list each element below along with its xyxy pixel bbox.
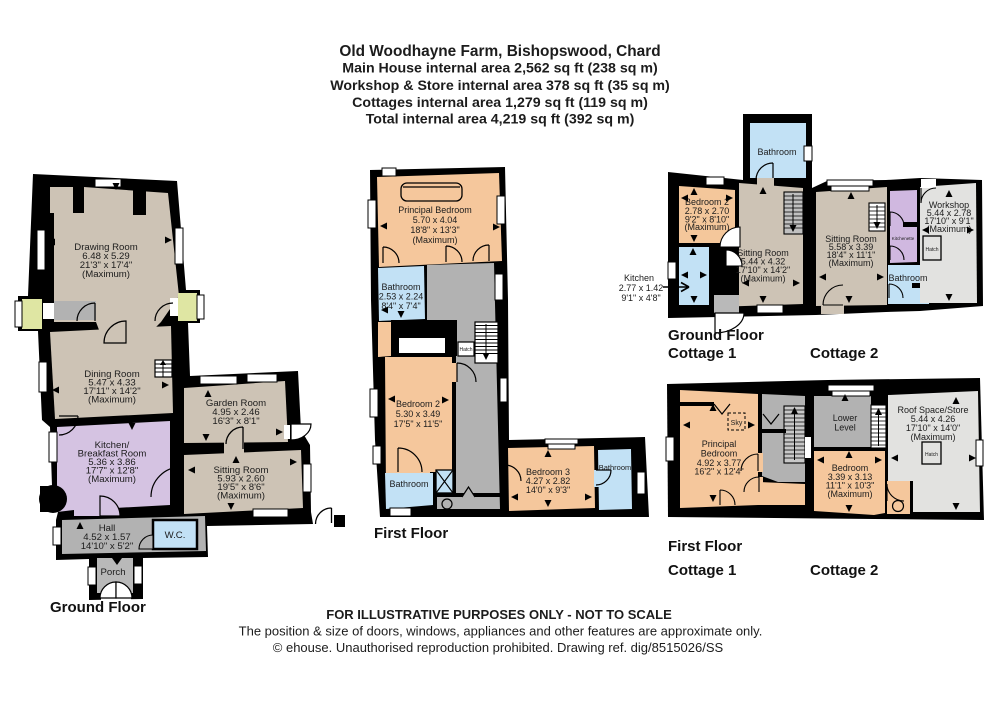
- svg-text:Principal Bedroom: Principal Bedroom: [398, 205, 472, 215]
- svg-text:14'10" x 5'2": 14'10" x 5'2": [81, 541, 134, 552]
- svg-text:Bathroom: Bathroom: [888, 273, 927, 283]
- svg-text:Porch: Porch: [100, 567, 125, 578]
- svg-text:Kitchenette: Kitchenette: [892, 236, 915, 241]
- svg-text:(Maximum): (Maximum): [88, 395, 136, 406]
- svg-text:Kitchen: Kitchen: [624, 273, 654, 283]
- svg-text:(Maximum): (Maximum): [829, 258, 874, 268]
- svg-text:Workshop & Store internal area: Workshop & Store internal area 378 sq ft…: [330, 78, 670, 94]
- svg-text:Hatch: Hatch: [459, 347, 472, 353]
- svg-text:(Maximum): (Maximum): [217, 491, 265, 502]
- svg-text:2.77 x 1.42: 2.77 x 1.42: [619, 283, 664, 293]
- svg-text:Bathroom: Bathroom: [757, 147, 796, 157]
- svg-text:Bathroom: Bathroom: [381, 282, 420, 292]
- svg-text:Hatch: Hatch: [925, 247, 938, 253]
- svg-text:(Maximum): (Maximum): [88, 474, 136, 485]
- svg-text:Total internal area 4,219 sq f: Total internal area 4,219 sq ft (392 sq …: [366, 112, 635, 128]
- svg-text:Old Woodhayne Farm, Bishopswoo: Old Woodhayne Farm, Bishopswood, Chard: [339, 43, 660, 60]
- svg-text:Bedroom: Bedroom: [701, 449, 738, 459]
- svg-text:16'2" x 12'4": 16'2" x 12'4": [694, 467, 743, 477]
- svg-text:9'1" x 4'8": 9'1" x 4'8": [621, 293, 660, 303]
- svg-text:5.70 x 4.04: 5.70 x 4.04: [413, 215, 458, 225]
- svg-text:Principal: Principal: [702, 439, 737, 449]
- svg-text:Hatch: Hatch: [925, 452, 938, 458]
- svg-text:First Floor: First Floor: [668, 538, 742, 555]
- svg-text:14'0" x 9'3": 14'0" x 9'3": [526, 485, 570, 495]
- svg-text:© ehouse. Unauthorised reprodu: © ehouse. Unauthorised reproduction proh…: [273, 640, 724, 655]
- svg-text:(Maximum): (Maximum): [927, 224, 972, 234]
- svg-text:Ground Floor: Ground Floor: [50, 599, 146, 616]
- svg-text:Cottages internal area 1,279 s: Cottages internal area 1,279 sq ft (119 …: [352, 95, 648, 111]
- svg-text:Lower: Lower: [833, 413, 858, 423]
- svg-text:Level: Level: [834, 423, 856, 433]
- svg-text:(Maximum): (Maximum): [82, 269, 130, 280]
- svg-text:W.C.: W.C.: [165, 530, 186, 541]
- svg-text:2.53 x 2.24: 2.53 x 2.24: [379, 292, 424, 302]
- svg-text:Cottage 2: Cottage 2: [810, 562, 878, 579]
- svg-text:(Maximum): (Maximum): [685, 222, 730, 232]
- svg-text:(Maximum): (Maximum): [911, 432, 956, 442]
- svg-text:The position & size of doors,: The position & size of doors, windows, a…: [239, 624, 763, 639]
- svg-text:Ground Floor: Ground Floor: [668, 327, 764, 344]
- svg-text:(Maximum): (Maximum): [413, 235, 458, 245]
- svg-text:Cottage 2: Cottage 2: [810, 345, 878, 362]
- svg-text:17'5" x 11'5": 17'5" x 11'5": [394, 419, 443, 429]
- svg-text:Main House internal area 2,562: Main House internal area 2,562 sq ft (23…: [342, 61, 658, 77]
- svg-text:(Maximum): (Maximum): [828, 489, 873, 499]
- svg-text:Cottage 1: Cottage 1: [668, 562, 736, 579]
- svg-text:First Floor: First Floor: [374, 525, 448, 542]
- svg-text:Bedroom 2: Bedroom 2: [396, 399, 440, 409]
- svg-text:Cottage 1: Cottage 1: [668, 345, 736, 362]
- svg-text:FOR ILLUSTRATIVE PURPOSES ONLY: FOR ILLUSTRATIVE PURPOSES ONLY - NOT TO …: [326, 607, 672, 622]
- svg-text:16'3" x 8'1": 16'3" x 8'1": [212, 416, 259, 427]
- svg-text:Sky: Sky: [731, 420, 743, 427]
- svg-text:5.30 x 3.49: 5.30 x 3.49: [396, 409, 441, 419]
- svg-text:Bathroom: Bathroom: [389, 479, 428, 489]
- svg-text:Bathroom: Bathroom: [599, 463, 632, 472]
- svg-text:18'8" x 13'3": 18'8" x 13'3": [410, 225, 459, 235]
